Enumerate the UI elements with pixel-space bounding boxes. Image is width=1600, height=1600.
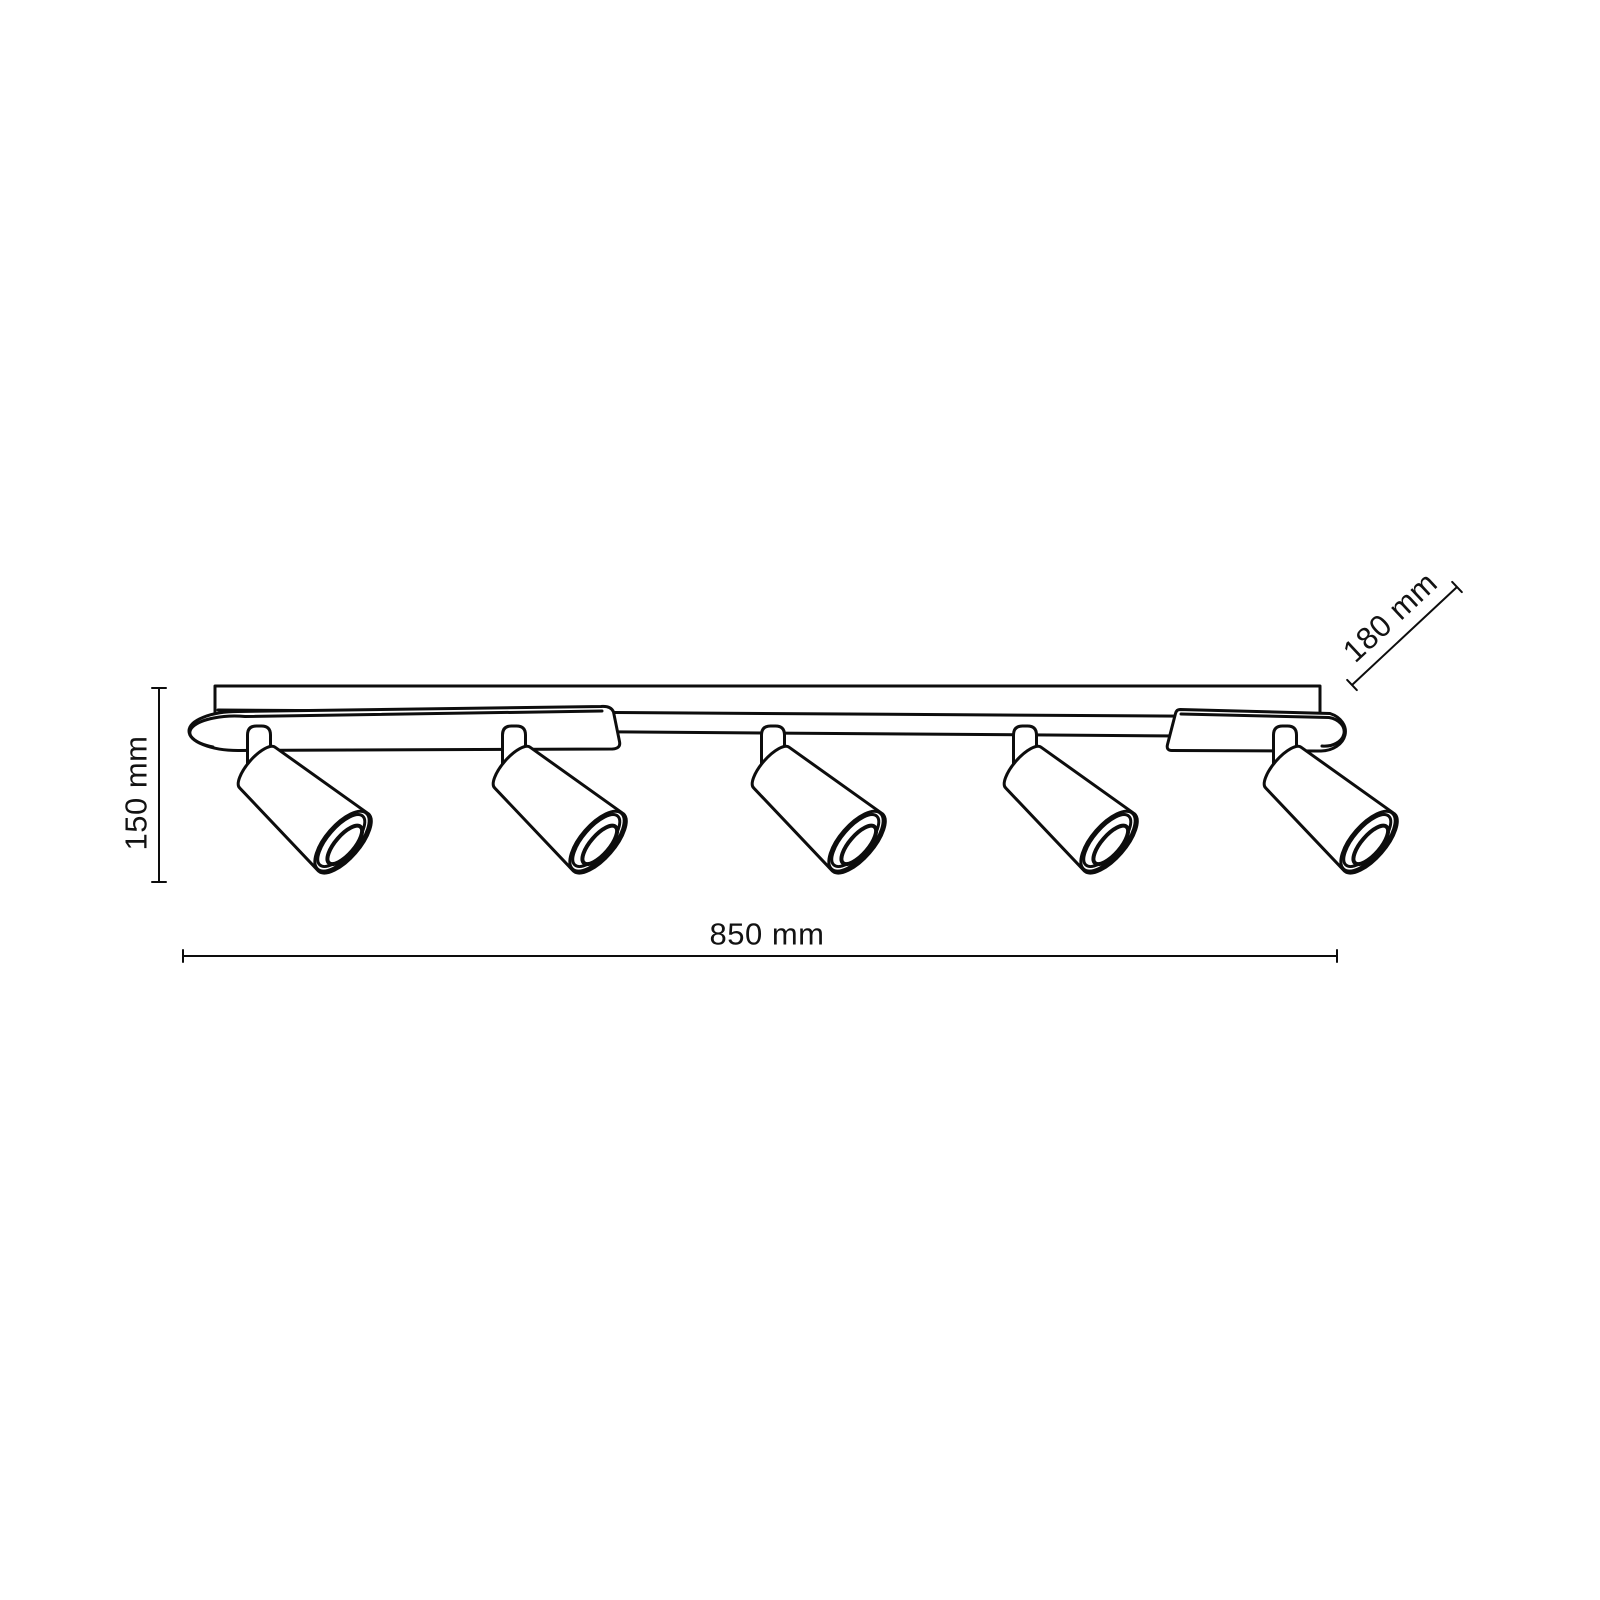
diagram-page: 850 mm 150 mm 180 mm	[0, 0, 1600, 1600]
height-dimension-line	[152, 688, 166, 882]
spotlight-4	[991, 726, 1147, 882]
width-dimension-label: 850 mm	[710, 919, 825, 950]
spotlight-3	[739, 726, 895, 882]
width-dimension-line	[183, 950, 1337, 962]
fixture-drawing	[0, 0, 1600, 1600]
height-dimension-label: 150 mm	[121, 736, 152, 851]
right-end-plate	[1167, 710, 1345, 752]
